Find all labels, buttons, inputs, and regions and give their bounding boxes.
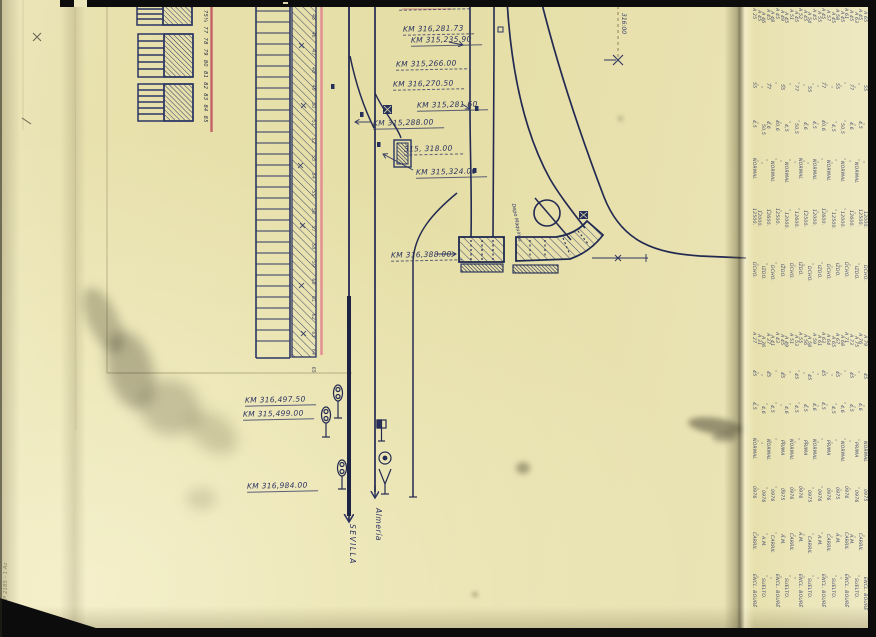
scan-border-top — [60, 0, 876, 7]
table-cell: „ — [862, 405, 867, 408]
table-cell: A 65 — [862, 11, 867, 22]
table-cell: 45 — [862, 373, 867, 379]
table-cell: DCHO. — [862, 265, 867, 281]
table-cell: NORMAL — [862, 441, 867, 462]
table-row: A 6555„„12000.DCHO.A 7945„NORMAL0975„ENC… — [861, 11, 867, 611]
table-cell: 55 — [862, 85, 867, 91]
table-cell: ENCL. BOURÉ — [862, 577, 867, 610]
table-cell: „ — [862, 123, 867, 126]
table-cell: „ — [862, 161, 867, 164]
table-cell: A 79 — [862, 335, 867, 346]
scan-border-bottom — [0, 628, 876, 637]
switch-table-layer: A 25554,5NORMAL12500.DCHO.A 27454,5NORMA… — [0, 0, 876, 637]
table-cell: 12000. — [862, 211, 867, 228]
scanned-track-plan: 75¼ 77 78 79 80 81 82 83 84 85 45 46 47 … — [0, 0, 876, 637]
scan-border-notch — [74, 0, 87, 7]
table-cell: 0975 — [862, 489, 867, 502]
scan-border-slit — [283, 2, 288, 4]
scan-border-left — [0, 0, 2, 637]
scan-border-right — [868, 0, 876, 637]
table-cell: „ — [862, 535, 867, 538]
